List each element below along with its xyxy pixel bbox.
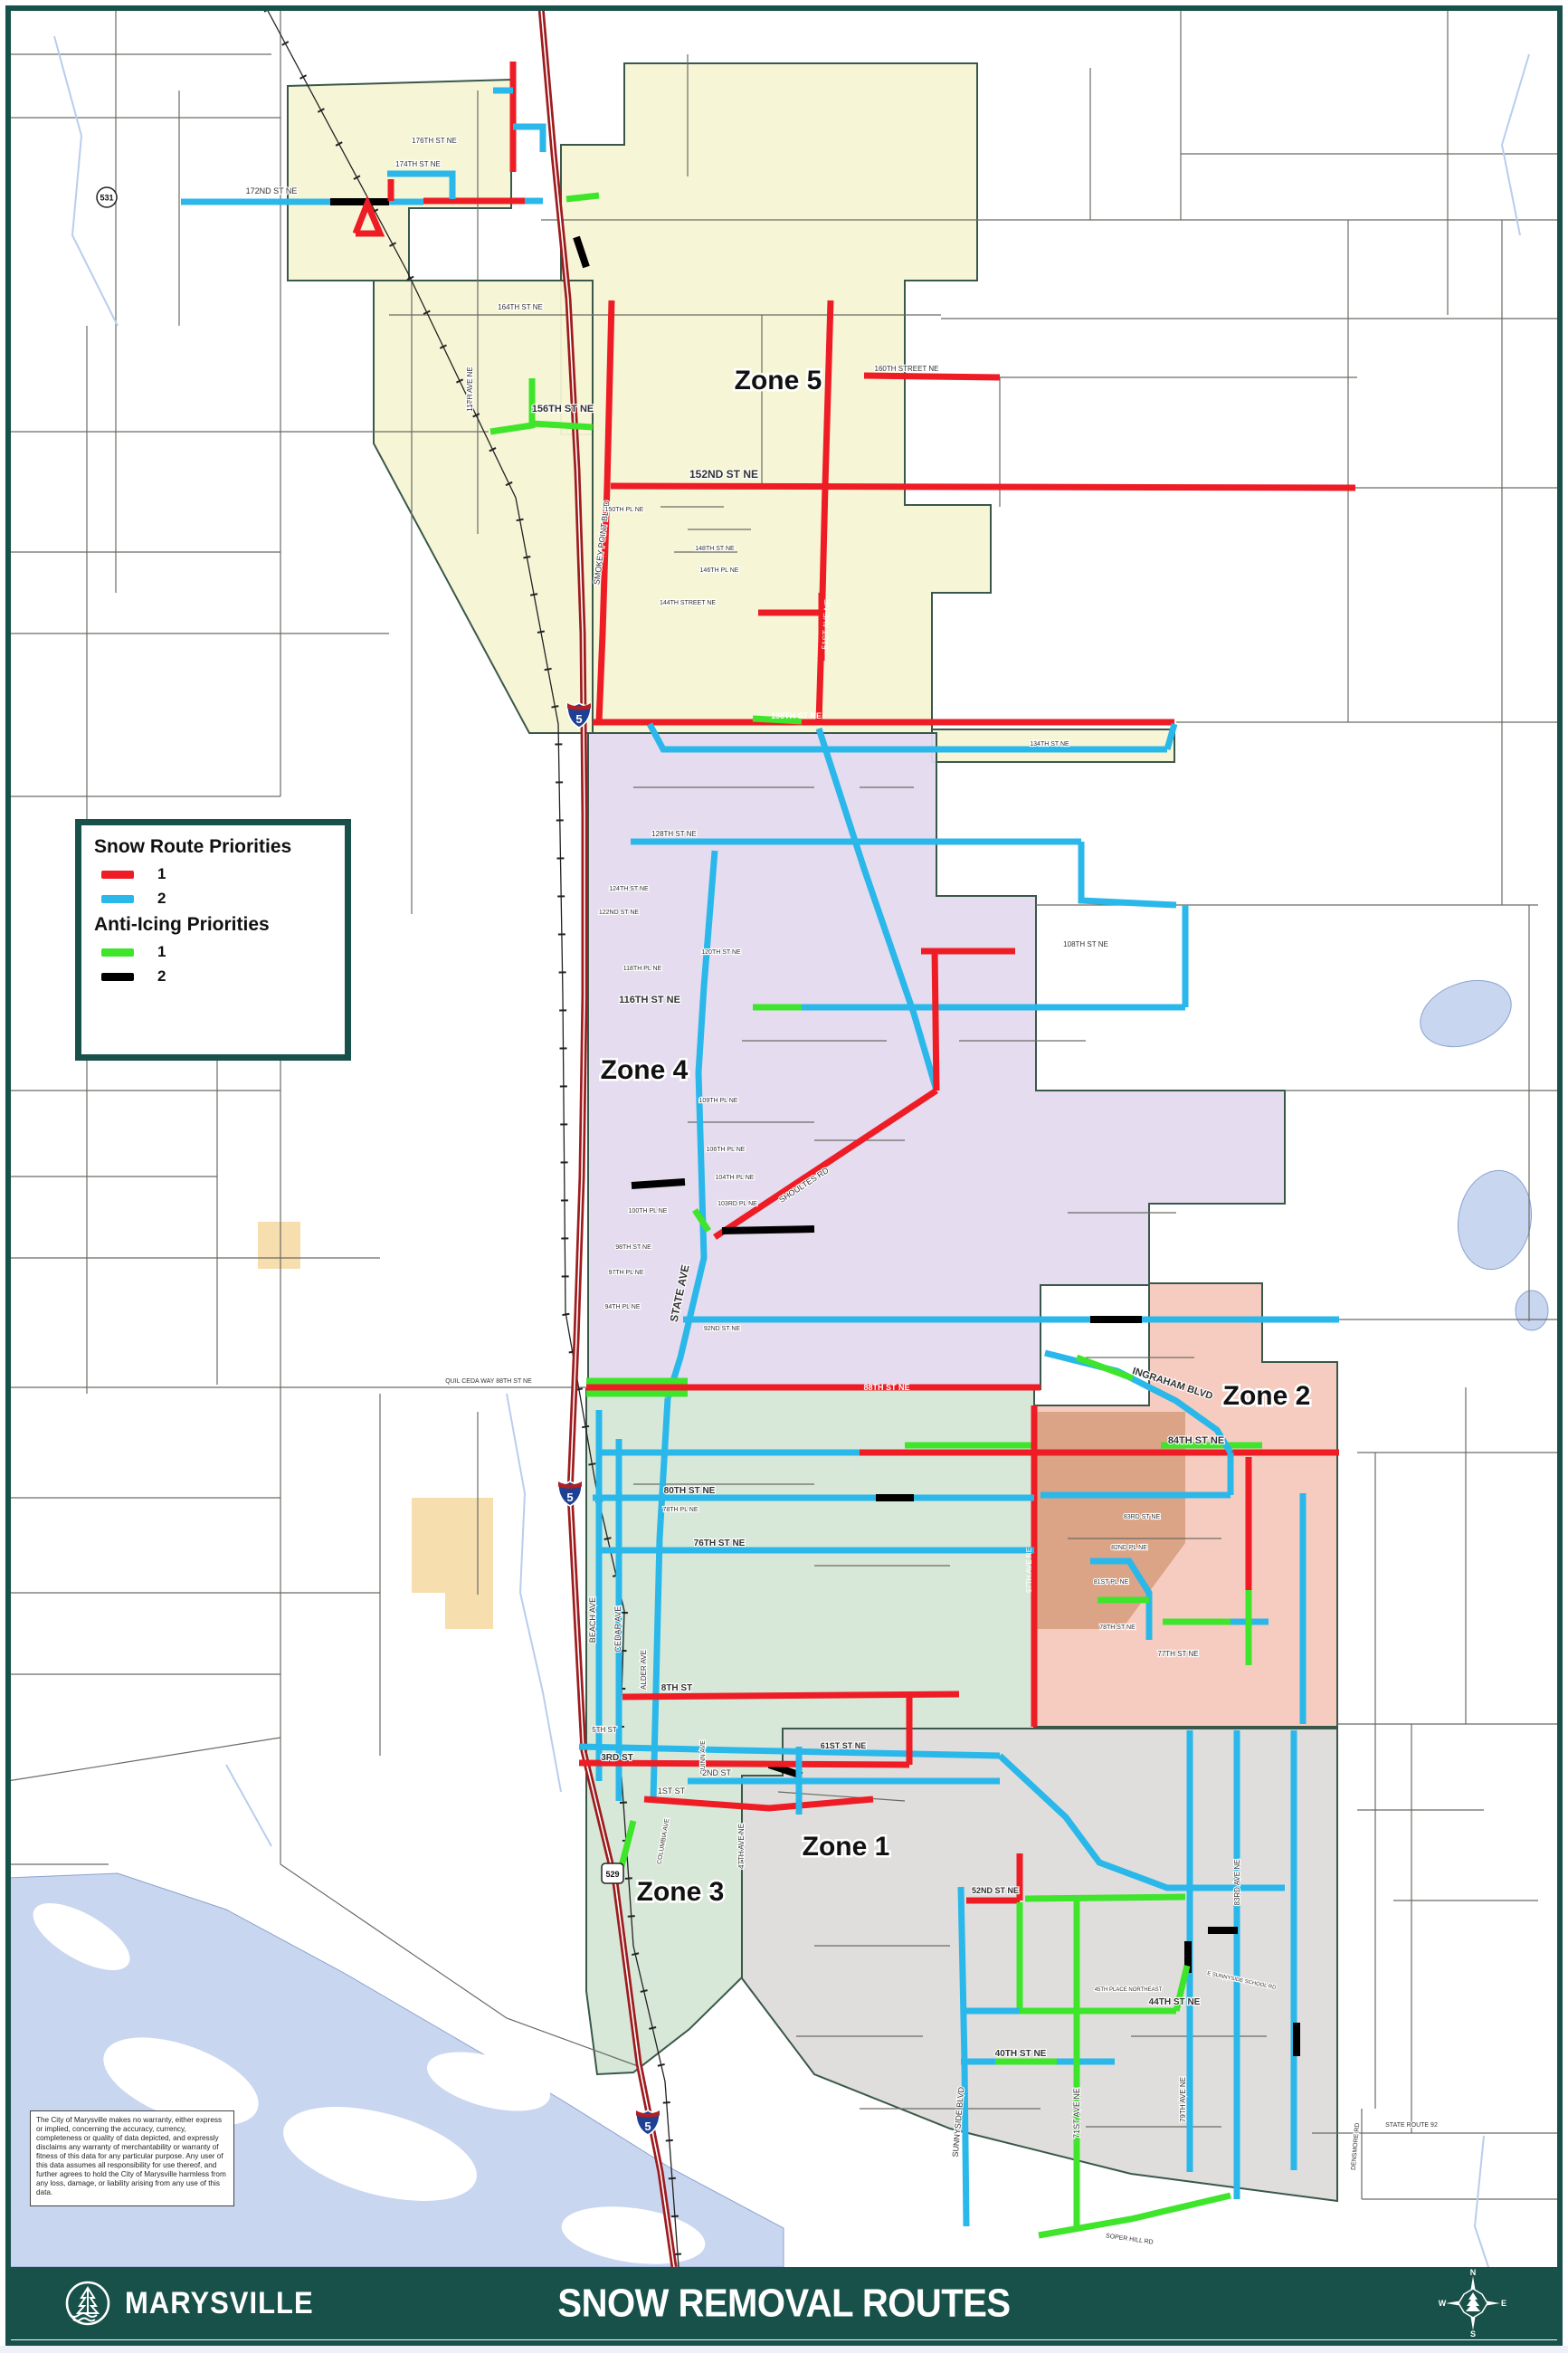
zone-label: Zone 1 (803, 1832, 890, 1862)
legend-box: Snow Route Priorities 12 Anti-Icing Prio… (75, 819, 351, 1061)
route-ice-priority-1 (532, 424, 593, 427)
street-label: 98TH ST NE (615, 1244, 651, 1251)
legend-ice-item-0: 1 (101, 943, 332, 961)
lake (1516, 1291, 1548, 1330)
street-label: STATE ROUTE 92 (1385, 2122, 1438, 2129)
street-label: 106TH PL NE (707, 1147, 746, 1153)
legend-ice-items: 12 (94, 943, 332, 986)
street-label: 134TH ST NE (1030, 741, 1069, 748)
marysville-tree-logo-icon (63, 2279, 112, 2328)
state-route-square-shield-icon: 529 (602, 1863, 623, 1883)
zone-polygon (258, 1222, 300, 1269)
street-label: 152ND ST NE (689, 468, 758, 481)
legend-snow-item-0: 1 (101, 865, 332, 883)
street-label: 81ST PL NE (1094, 1579, 1129, 1586)
legend-snow-item-swatch-0 (101, 871, 134, 879)
legend-ice-item-swatch-0 (101, 948, 134, 957)
street-label: 122ND ST NE (599, 910, 640, 916)
street-label: 77TH ST NE (1157, 1650, 1198, 1658)
route-snow-priority-1 (611, 486, 1355, 488)
route-snow-priority-2 (579, 1747, 737, 1750)
disclaimer-text: The City of Marysville makes no warranty… (36, 2116, 228, 2197)
street-label: 5TH ST (592, 1726, 617, 1734)
street-label: 160TH STREET NE (875, 365, 939, 373)
interstate-shield-number: 5 (644, 2120, 651, 2133)
zone-label: Zone 3 (637, 1877, 725, 1907)
street-label: QUIL CEDA WAY 88TH ST NE (445, 1378, 532, 1385)
interstate-shield-number: 5 (566, 1491, 573, 1504)
street-label: 116TH ST NE (619, 995, 680, 1005)
route-snow-priority-1 (864, 376, 1000, 377)
legend-snow-item-label-0: 1 (157, 865, 166, 883)
zone-label: Zone 5 (735, 366, 822, 395)
snow-removal-routes-map-page: 555531529172ND ST NE174TH ST NE176TH ST … (0, 0, 1568, 2353)
street-label: 52ND ST NE (972, 1886, 1019, 1895)
legend-snow-item-swatch-1 (101, 895, 134, 903)
street-label: 11TH AVE NE (466, 367, 474, 412)
disclaimer-box: The City of Marysville makes no warranty… (30, 2110, 234, 2206)
street-label: 156TH ST NE (532, 404, 594, 414)
state-shield-number: 531 (100, 194, 113, 203)
street-label: ALDER AVE (640, 1650, 648, 1690)
street-label: 150TH PL NE (605, 507, 644, 513)
street-label: 136TH ST NE (771, 711, 822, 720)
legend-ice-item-swatch-1 (101, 973, 134, 981)
legend-ice-title: Anti-Icing Priorities (94, 914, 332, 936)
route-ice-priority-2 (722, 1229, 814, 1231)
compass-north-label: N (1470, 2269, 1477, 2277)
street-label: 79TH AVE NE (1179, 2077, 1187, 2122)
street-label: 84TH ST NE (1168, 1435, 1224, 1446)
street-label: 47TH AVE NE (737, 1824, 746, 1869)
footer-bar: MARYSVILLE SNOW REMOVAL ROUTES N S E W (11, 2267, 1557, 2339)
street-label: 118TH PL NE (623, 966, 662, 972)
street-label: 97TH PL NE (608, 1270, 643, 1276)
interstate-shield-number: 5 (575, 712, 582, 726)
street-label: 1ST ST (658, 1786, 686, 1796)
street-label: 164TH ST NE (498, 303, 543, 311)
compass-east-label: E (1501, 2299, 1506, 2308)
street-label: 104TH PL NE (716, 1175, 755, 1181)
state-shield-number: 529 (605, 1870, 619, 1879)
street-label: 94TH PL NE (604, 1304, 640, 1310)
route-ice-priority-1 (566, 195, 599, 199)
street-label: 76TH ST NE (694, 1538, 746, 1548)
street-label: 78TH PL NE (662, 1507, 698, 1513)
street-label: 172ND ST NE (246, 186, 298, 195)
street-label: 176TH ST NE (412, 137, 457, 145)
zone-label: Zone 2 (1223, 1381, 1311, 1411)
street-label: 108TH ST NE (1063, 940, 1108, 948)
zone-label: Zone 4 (601, 1055, 689, 1085)
route-snow-priority-1 (579, 1763, 909, 1765)
legend-snow-title: Snow Route Priorities (94, 836, 332, 858)
street-label: 83RD AVE NE (1233, 1860, 1241, 1906)
street-label: 71ST AVE NE (1072, 2088, 1081, 2139)
street-label: 120TH ST NE (701, 949, 741, 956)
page-bottom-margin (0, 2346, 1568, 2353)
street-label: 88TH ST NE (863, 1383, 909, 1392)
street-label: 144TH STREET NE (660, 600, 716, 606)
street-label: 124TH ST NE (609, 886, 649, 892)
street-label: 109TH PL NE (699, 1098, 738, 1104)
street-label: 2ND ST (702, 1768, 732, 1777)
city-name-label: MARYSVILLE (125, 2285, 314, 2321)
street-label: 148TH ST NE (695, 546, 735, 552)
city-brand: MARYSVILLE (63, 2279, 314, 2328)
street-label: 100TH PL NE (629, 1208, 668, 1215)
legend-snow-items: 12 (94, 865, 332, 908)
street-label: 3RD ST (601, 1753, 633, 1763)
compass-west-label: W (1439, 2299, 1447, 2308)
street-label: 40TH ST NE (995, 2049, 1047, 2059)
route-ice-priority-1 (1025, 1897, 1185, 1899)
compass-south-label: S (1470, 2329, 1476, 2338)
street-label: 67TH AVE NE (1025, 1548, 1033, 1593)
compass-rose-icon: N S E W (1439, 2269, 1507, 2338)
street-label: 174TH ST NE (395, 160, 441, 168)
street-label: BEACH AVE (588, 1597, 597, 1643)
map-canvas[interactable]: 555531529172ND ST NE174TH ST NE176TH ST … (0, 0, 1568, 2353)
route-ice-priority-2 (632, 1182, 685, 1186)
street-label: 61ST ST NE (821, 1741, 867, 1750)
street-label: 45TH PLACE NORTHEAST (1095, 1987, 1163, 1993)
street-label: 146TH PL NE (700, 567, 739, 574)
street-label: 82ND PL NE (1111, 1545, 1147, 1551)
street-label: 92ND ST NE (704, 1326, 741, 1332)
legend-snow-item-label-1: 2 (157, 890, 166, 908)
legend-ice-item-1: 2 (101, 967, 332, 986)
route-snow-priority-1 (935, 948, 936, 1091)
state-route-circle-shield-icon: 531 (97, 187, 117, 207)
legend-ice-item-label-0: 1 (157, 943, 166, 961)
legend-snow-item-1: 2 (101, 890, 332, 908)
street-label: 83RD ST NE (1124, 1514, 1161, 1520)
street-label: 80TH ST NE (664, 1486, 716, 1496)
street-label: CEDAR AVE (613, 1606, 622, 1653)
street-label: 128TH ST NE (651, 830, 697, 838)
legend-ice-item-label-1: 2 (157, 967, 166, 986)
street-label: 103RD PL NE (717, 1201, 757, 1207)
street-label: 8TH ST (661, 1683, 692, 1693)
street-label: 78TH ST NE (1099, 1624, 1136, 1631)
street-label: 44TH ST NE (1149, 1997, 1201, 2007)
